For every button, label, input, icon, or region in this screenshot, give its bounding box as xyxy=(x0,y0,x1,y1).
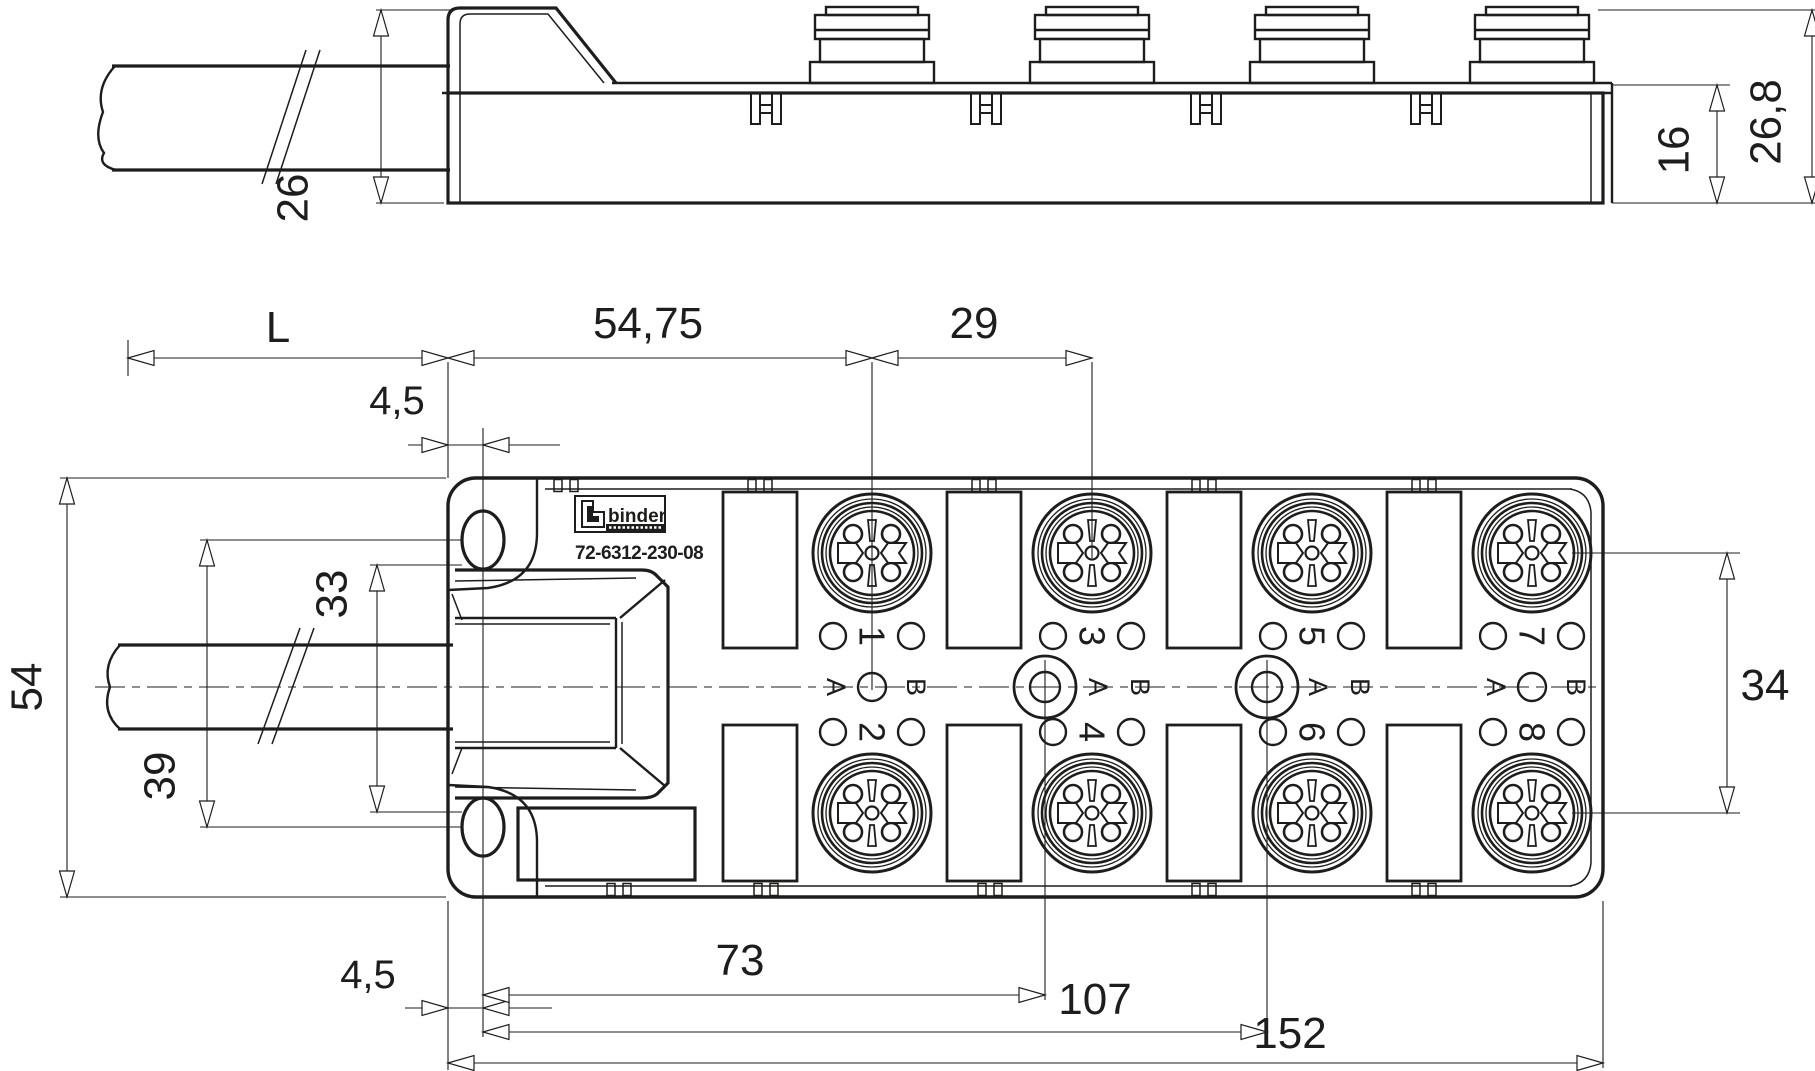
dim-total-height: 26,8 xyxy=(1598,10,1815,203)
mounting-ear-top xyxy=(448,479,537,590)
dim-label-54-75: 54,75 xyxy=(593,299,703,348)
dim-label-152: 152 xyxy=(1253,1009,1326,1058)
cable-break-mark xyxy=(276,50,320,184)
dim-label-L: L xyxy=(266,303,290,352)
dim-label-4-5-top: 4,5 xyxy=(369,379,425,423)
m12-socket-5 xyxy=(1253,494,1371,612)
extension-lines xyxy=(60,340,1740,1070)
snap-clip xyxy=(1191,93,1221,124)
dim-slot-pitch: 39 xyxy=(136,540,215,827)
code-b-1: B xyxy=(901,678,931,696)
dim-slot-inner-span: 33 xyxy=(308,565,385,812)
port-6-label: 6 xyxy=(1292,722,1333,742)
blank-label-field xyxy=(518,808,695,880)
port-2-label: 2 xyxy=(852,722,893,742)
code-b-4: B xyxy=(1561,678,1591,696)
part-number: 72-6312-230-08 xyxy=(575,543,703,564)
dim-fixing-2: 107 xyxy=(483,975,1267,1040)
dim-label-4-5-bottom: 4,5 xyxy=(340,953,396,997)
snap-clip xyxy=(971,93,1001,124)
dim-slot-offset-top: 4,5 xyxy=(369,379,560,453)
m12-socket-4 xyxy=(1033,754,1151,872)
code-a-4: A xyxy=(1481,678,1511,696)
dim-width: 152 xyxy=(448,1009,1603,1071)
m12-socket-6 xyxy=(1253,754,1371,872)
binder-logo-text: binder xyxy=(608,506,667,527)
m12-socket-2 xyxy=(813,754,931,872)
technical-drawing-canvas: 26 16 26,8 xyxy=(0,0,1815,1071)
top-cable xyxy=(107,628,453,744)
code-a-3: A xyxy=(1303,678,1333,696)
cable-hood xyxy=(448,8,616,93)
dim-fixing-1: 73 xyxy=(483,936,1045,1003)
status-leds xyxy=(820,623,1584,745)
dim-label-34: 34 xyxy=(1741,661,1790,710)
port-3-label: 3 xyxy=(1072,626,1113,646)
side-connector-stub xyxy=(1250,7,1374,83)
dim-hood-height: 26 xyxy=(269,10,451,222)
code-b-3: B xyxy=(1345,678,1375,696)
binder-logo-icon-inner xyxy=(587,506,599,522)
distribution-box-drawing: 26 16 26,8 xyxy=(0,0,1815,1071)
dim-label-73: 73 xyxy=(716,936,765,985)
dim-label-33: 33 xyxy=(308,570,357,619)
dim-label-16: 16 xyxy=(1650,126,1699,175)
port-4-label: 4 xyxy=(1072,722,1113,742)
port-7-label: 7 xyxy=(1512,626,1553,646)
dim-label-39: 39 xyxy=(136,752,185,801)
side-housing xyxy=(442,8,1612,203)
snap-clip xyxy=(751,93,781,124)
cable-entry-boss xyxy=(452,570,668,798)
dim-label-26: 26 xyxy=(269,174,318,223)
dim-port-row-span: 34 xyxy=(1720,553,1790,813)
side-connector-stub xyxy=(1030,7,1154,83)
port-5-label: 5 xyxy=(1292,626,1333,646)
dim-label-26-8: 26,8 xyxy=(1742,79,1791,165)
cable-break-mark xyxy=(262,50,306,184)
code-b-2: B xyxy=(1125,678,1155,696)
code-a-2: A xyxy=(1083,678,1113,696)
dim-label-29: 29 xyxy=(950,299,999,348)
side-connector-stub xyxy=(810,7,934,83)
dim-height: 54 xyxy=(3,478,75,897)
snap-clip xyxy=(1411,93,1441,124)
dim-chain-top: L 54,75 29 xyxy=(128,299,1092,366)
side-cable xyxy=(98,50,450,184)
top-view: binder 72-6312-230-08 xyxy=(3,299,1790,1071)
dim-body-height: 16 xyxy=(1612,85,1730,203)
brand-block: binder 72-6312-230-08 xyxy=(575,496,703,564)
port-8-label: 8 xyxy=(1512,722,1553,742)
dim-slot-offset-bottom: 4,5 xyxy=(340,953,552,1016)
side-connector-stub xyxy=(1470,7,1594,83)
code-a-1: A xyxy=(821,678,851,696)
dim-label-107: 107 xyxy=(1058,975,1131,1024)
dim-label-54: 54 xyxy=(3,663,52,712)
side-view: 26 16 26,8 xyxy=(98,7,1815,222)
